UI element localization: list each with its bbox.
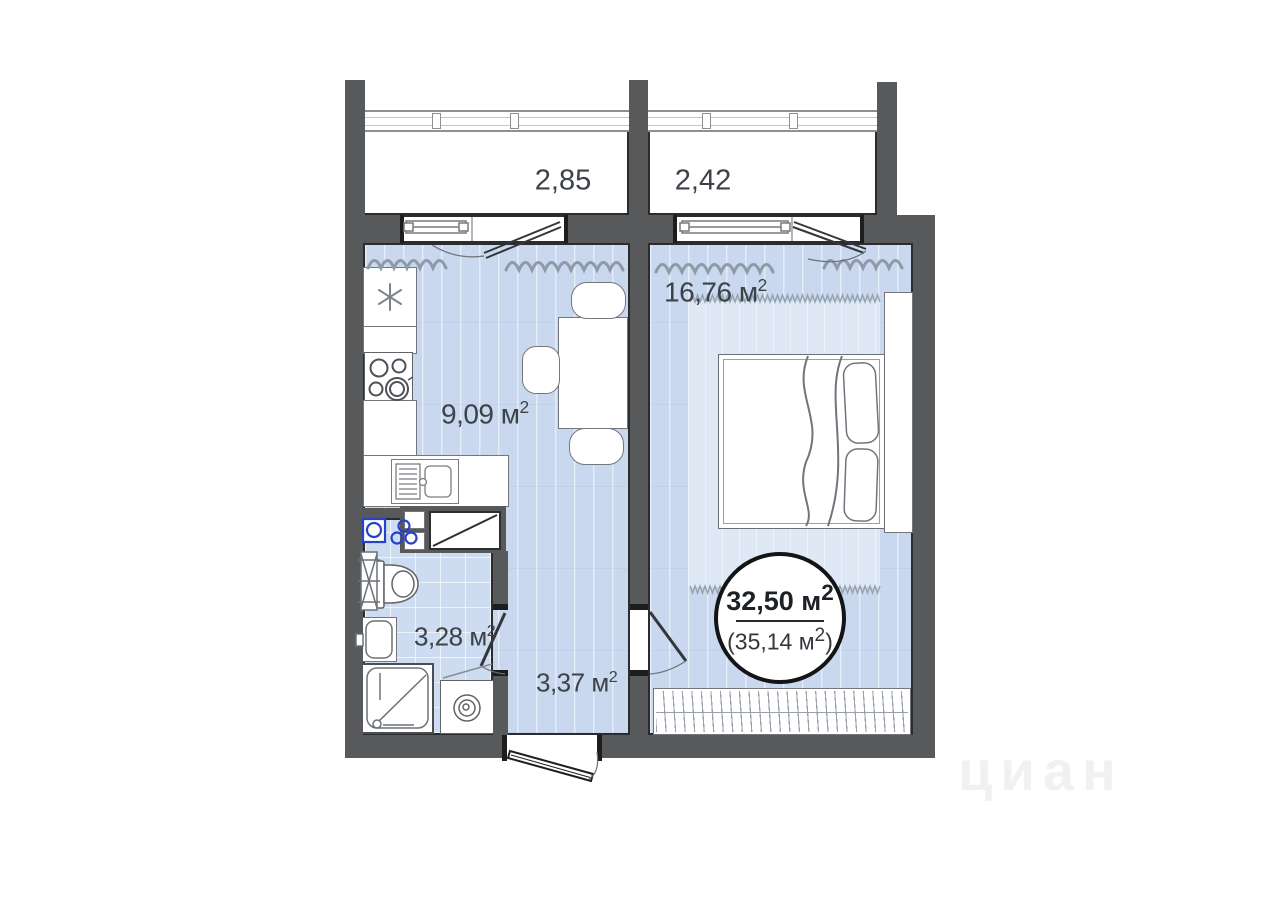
- wall-cap: [493, 604, 508, 610]
- balcony-pillar-right: [877, 82, 897, 215]
- wall-cap: [630, 604, 648, 610]
- left-wall: [345, 215, 363, 758]
- balcony-pillar-left: [345, 80, 365, 215]
- top-wall-middle: [566, 215, 675, 243]
- shaft-box: [404, 532, 425, 550]
- glazing-mullion: [510, 113, 519, 129]
- bathroom-right-wall-upper: [493, 551, 508, 604]
- stove: [364, 352, 413, 402]
- chair: [569, 428, 624, 465]
- wall-cap: [493, 670, 508, 676]
- wall-cap: [630, 670, 648, 676]
- shaft-box: [404, 511, 425, 529]
- glazing-mullion: [789, 113, 798, 129]
- wall-cap: [502, 735, 507, 761]
- dining-table: [558, 317, 628, 429]
- fridge: [363, 267, 417, 328]
- bathroom-area-label: 3,28 м2: [414, 623, 495, 650]
- total-area-secondary: (35,14 м2): [727, 625, 833, 655]
- chair: [571, 282, 626, 319]
- middle-wall-lower: [630, 676, 648, 735]
- floor-plan: циан: [0, 0, 1280, 906]
- badge-divider: [736, 620, 824, 622]
- kitchen-area-label: 9,09 м2: [441, 399, 529, 428]
- balcony-right-area-label: 2,42: [675, 167, 731, 196]
- glazing-mullion: [432, 113, 441, 129]
- wardrobe-divider: [656, 712, 908, 714]
- bathroom-sink: [360, 617, 397, 662]
- wardrobe: [653, 688, 911, 735]
- kitchen-window-opening: [402, 215, 568, 243]
- hallway-area-label: 3,37 м2: [536, 669, 617, 696]
- bed-frame-inner: [723, 359, 880, 524]
- bathroom-top-wall: [363, 508, 402, 518]
- bed: [718, 354, 885, 529]
- kitchen-counter: [363, 326, 417, 354]
- kitchen-sink-unit: [391, 459, 459, 504]
- wall-cap: [564, 215, 568, 243]
- chair: [522, 346, 560, 394]
- wall-cap: [673, 215, 677, 243]
- total-area-badge: 32,50 м2 (35,14 м2): [714, 552, 846, 684]
- shower-tray: [361, 663, 434, 734]
- watermark: циан: [958, 738, 1124, 803]
- right-wall: [913, 215, 935, 758]
- kitchen-counter: [363, 400, 417, 457]
- headboard-column: [884, 292, 913, 533]
- balcony-left-area-label: 2,85: [535, 167, 591, 196]
- bedroom-window-opening: [675, 215, 864, 243]
- bathroom-right-wall-lower: [493, 676, 508, 735]
- wall-cap: [400, 215, 404, 243]
- middle-wall-upper: [630, 243, 648, 604]
- bottom-wall-right: [600, 735, 935, 758]
- wall-cap: [597, 735, 602, 761]
- shaft-duct: [429, 511, 501, 550]
- balcony-pillar-middle: [629, 80, 648, 215]
- bottom-wall-left: [345, 735, 506, 758]
- total-area-main: 32,50 м2: [726, 581, 834, 617]
- washing-machine: [440, 680, 496, 734]
- wall-cap: [860, 215, 864, 243]
- entrance-door-icon: [508, 751, 598, 781]
- bedroom-area-label: 16,76 м2: [664, 277, 767, 306]
- glazing-mullion: [702, 113, 711, 129]
